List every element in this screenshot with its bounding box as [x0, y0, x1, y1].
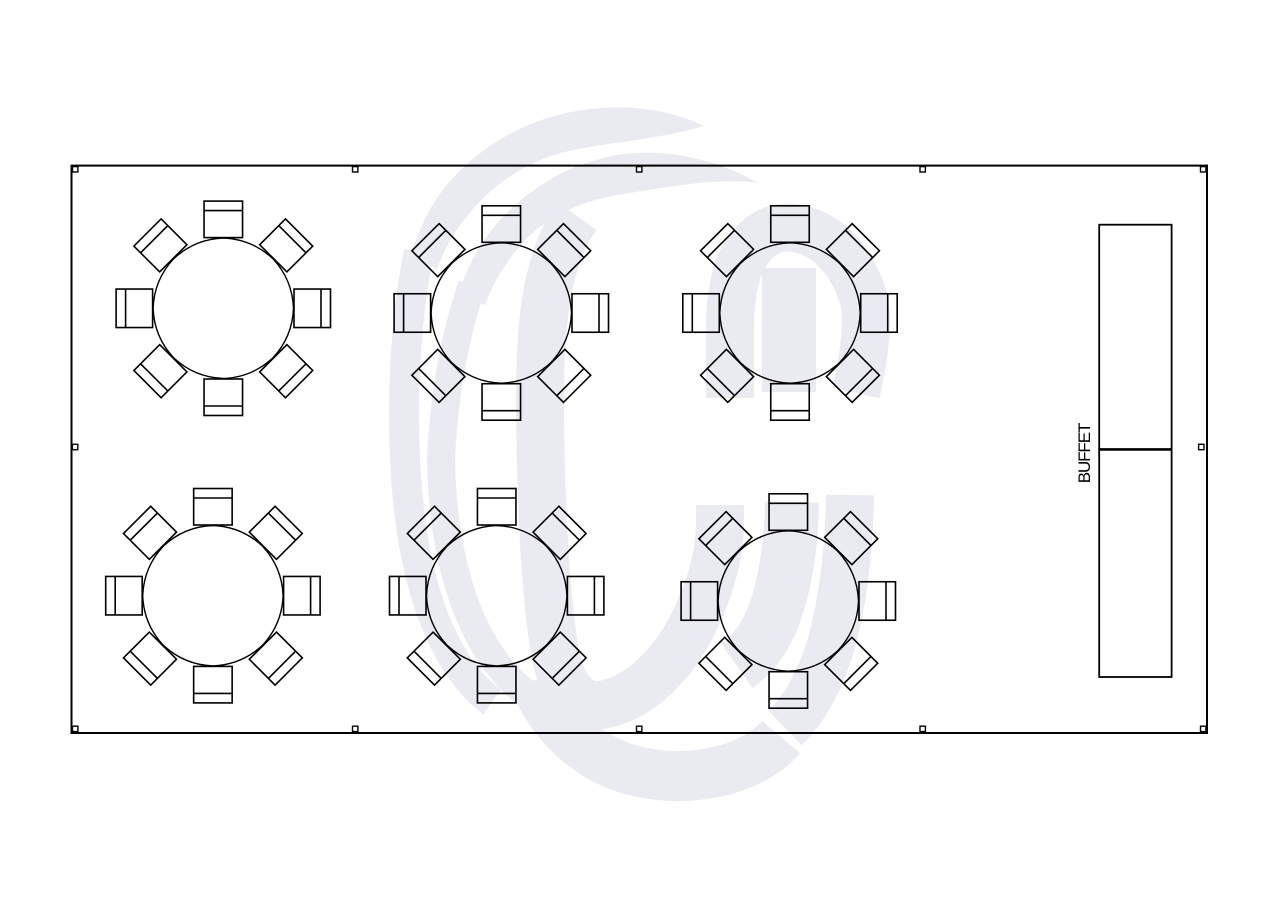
svg-text:BUFFET: BUFFET — [1075, 423, 1094, 483]
